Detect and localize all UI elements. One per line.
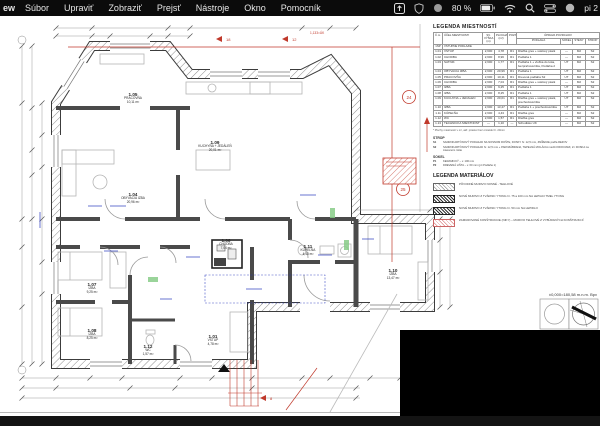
menu-pomocnik[interactable]: Pomocník: [281, 3, 321, 13]
status-area: 80 % pi 2: [394, 3, 600, 14]
markup-bubble-24: 24: [406, 95, 412, 100]
menu-nastroje[interactable]: Nástroje: [196, 3, 230, 13]
note-item: P1KERAMICKÝ – v. 100 mm: [433, 160, 599, 163]
note-item: P2DREVENÁ LIŠTA – v. 60 mm (pri Podlahe …: [433, 164, 599, 167]
hatch-swatch-dark: [433, 195, 455, 203]
menu-prejst[interactable]: Prejsť: [157, 3, 181, 13]
room-label: 1.09KUCHYŇA + JEDÁLEŇ20,01 m²: [185, 140, 245, 153]
wifi-icon[interactable]: [504, 4, 516, 13]
hatch-swatch-dark: [433, 207, 455, 215]
strop-title: STROP: [433, 136, 599, 140]
note-item: S1SADROKARTÓNOVÝ PODHĽAD NA NOSNOM ROŠTE…: [433, 141, 599, 144]
material-item: NOVÉ MURIVO Z TVÁRNIC YTONG hr. 50 mm NA…: [433, 206, 599, 215]
markup-flag-12: 12: [292, 37, 297, 42]
elevation-text: ±0,000=180,58 m.n.m. Bpv: [549, 292, 597, 297]
menu-clock[interactable]: pi 2: [584, 3, 598, 13]
rooms-legend-title: LEGENDA MIESTNOSTÍ: [433, 24, 599, 30]
material-item: NOVÉ MURIVO Z TVÁRNIC YTONG hr. 75 a 100…: [433, 194, 599, 203]
app-menu-title[interactable]: ew: [0, 3, 25, 13]
legend-panel: LEGENDA MIESTNOSTÍ Č.m. ÚČEL MIESTNOSTI …: [433, 24, 599, 230]
battery-percentage: 80 %: [452, 3, 471, 13]
room-row: 1.03 ŠATNÍK 2,600 1,77 R1 Podlaha 1 + vl…: [434, 60, 600, 69]
markup-flag-18: 18: [226, 37, 231, 42]
search-icon[interactable]: [525, 3, 535, 13]
room-label: 1.01VSTUP4,78 m²: [183, 334, 243, 347]
siri-icon[interactable]: [565, 3, 575, 13]
hatch-swatch-red: [433, 219, 455, 227]
sokel-title: SOKEL: [433, 155, 599, 159]
room-row: 1.09 KUCHYŇA + JEDÁLEŇ 2,600 20,01 R1 Dl…: [434, 96, 600, 105]
material-item: PÔVODNÉ MURIVO NOSNÉ - TEHLOVÉ: [433, 182, 599, 191]
battery-icon: [480, 4, 495, 12]
menu-zobrazit[interactable]: Zobraziť: [108, 3, 141, 13]
bottom-black-bar: [0, 416, 600, 426]
materials-legend: LEGENDA MATERIÁLOV PÔVODNÉ MURIVO NOSNÉ …: [433, 173, 599, 227]
screen-share-icon[interactable]: [394, 3, 405, 14]
markup-bubble-25: 25: [400, 187, 406, 192]
room-label: 1.05PRACOVŇA10,11 m²: [103, 92, 163, 105]
markup-note: 1,133=ÚK: [310, 30, 325, 35]
windows: [50, 40, 436, 370]
menu-subor[interactable]: Súbor: [25, 3, 49, 13]
note-item: S2SADROKARTÓNOVÝ PODHĽAD hr. 12,5 mm + P…: [433, 146, 599, 152]
room-label: 1.11KÚPEĽŇA4,43 m²: [278, 244, 338, 257]
material-item: ZAMUROVANÉ KONŠTRUKCIE (NIKY) – MURIVO T…: [433, 218, 599, 227]
room-label: 1.12WC1,57 m²: [125, 344, 171, 357]
page-bottom-edge: [0, 412, 400, 413]
room-label: 1.10IZBA13,47 m²: [363, 268, 423, 281]
control-center-icon[interactable]: [544, 4, 556, 13]
black-overlay: [400, 330, 600, 416]
materials-legend-title: LEGENDA MATERIÁLOV: [433, 173, 599, 179]
rooms-table: Č.m. ÚČEL MIESTNOSTI SV. VÝŠKA (m) PLOCH…: [433, 32, 600, 127]
menu-upravit[interactable]: Upraviť: [64, 3, 93, 13]
room-label: 1.08IZBA8,25 m²: [62, 328, 122, 341]
room-row: 1.13 TECHNICKÁ MIESTNOSŤ — 1,10 — Schodi…: [434, 121, 600, 126]
markup-flag-8: 8: [270, 396, 273, 401]
table-footnote: * Plochy miestností v m², atď. priestor …: [433, 129, 599, 132]
menu-items: Súbor Upraviť Zobraziť Prejsť Nástroje O…: [25, 3, 321, 13]
elevation-block: ±0,000=180,58 m.n.m. Bpv: [540, 292, 598, 329]
hatch-swatch-gray: [433, 183, 455, 191]
room-label: 1.04OBÝVACIA IZBA20,96 m²: [103, 192, 163, 205]
menu-bar: ew Súbor Upraviť Zobraziť Prejsť Nástroj…: [0, 0, 600, 16]
app-status-icon[interactable]: [433, 3, 443, 13]
room-label: 1.06CHODBA7,04 m²: [196, 238, 256, 251]
shield-icon[interactable]: [414, 3, 424, 14]
room-label: 1.07IZBA9,25 m²: [62, 282, 122, 295]
menu-okno[interactable]: Okno: [244, 3, 266, 13]
